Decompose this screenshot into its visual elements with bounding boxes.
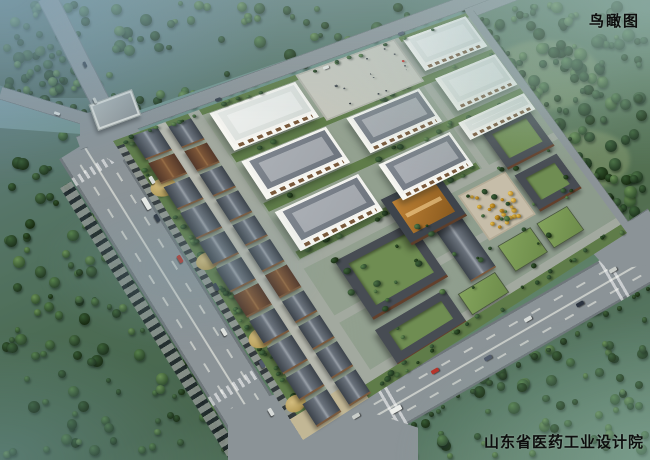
- forest-tree: [140, 14, 152, 26]
- tree: [453, 328, 461, 335]
- tree: [396, 143, 405, 150]
- pedestrian-dot: [335, 85, 338, 88]
- forest-tree: [167, 20, 175, 28]
- aerial-rendering: 鸟瞰图 山东省医药工业设计院: [0, 0, 650, 460]
- tree: [428, 348, 434, 354]
- forest-tree: [630, 175, 637, 182]
- street-tree: [546, 348, 551, 353]
- pedestrian-dot: [377, 93, 379, 95]
- forest-tree: [73, 351, 83, 361]
- forest-tree: [314, 6, 320, 12]
- pedestrian-dot: [373, 77, 375, 79]
- forest-tree: [635, 381, 643, 389]
- street-tree: [499, 372, 506, 379]
- golden-tree: [475, 196, 479, 200]
- street-tree: [429, 412, 434, 417]
- forest-tree: [517, 383, 526, 392]
- forest-tree: [112, 45, 120, 53]
- pedestrian-dot: [385, 89, 388, 91]
- forest-tree: [583, 373, 588, 378]
- forest-tree: [6, 235, 18, 247]
- forest-tree: [111, 4, 122, 15]
- forest-tree: [570, 74, 579, 83]
- forest-tree: [15, 327, 20, 332]
- forest-tree: [554, 95, 561, 102]
- tree: [547, 269, 553, 275]
- forest-tree: [536, 43, 548, 55]
- forest-tree: [474, 433, 481, 440]
- tree: [269, 138, 278, 145]
- forest-tree: [24, 376, 30, 382]
- forest-tree: [620, 389, 625, 394]
- forest-tree: [616, 374, 624, 382]
- forest-tree: [43, 60, 53, 70]
- street-tree: [544, 102, 549, 107]
- forest-tree: [636, 110, 647, 121]
- forest-tree: [154, 429, 160, 435]
- forest-tree: [59, 77, 66, 84]
- forest-tree: [76, 439, 81, 444]
- forest-tree: [578, 126, 587, 135]
- forest-tree: [310, 33, 318, 41]
- tree: [474, 313, 480, 319]
- forest-tree: [492, 452, 498, 458]
- forest-tree: [155, 418, 161, 424]
- forest-tree: [578, 103, 591, 116]
- tree: [415, 360, 420, 365]
- pedestrian-dot: [366, 58, 369, 60]
- golden-tree: [476, 204, 483, 210]
- forest-tree: [393, 3, 403, 13]
- forest-tree: [68, 386, 79, 397]
- forest-tree: [610, 394, 621, 405]
- forest-tree: [85, 256, 94, 265]
- golden-tree: [489, 221, 496, 227]
- pedestrian-dot: [405, 69, 407, 71]
- forest-tree: [72, 411, 78, 417]
- tree: [279, 377, 285, 383]
- street-tree: [646, 287, 650, 291]
- tree: [179, 224, 188, 231]
- forest-tree: [546, 375, 557, 386]
- forest-tree: [31, 294, 40, 303]
- street-tree: [575, 331, 580, 336]
- forest-tree: [303, 19, 310, 26]
- tree: [405, 368, 410, 372]
- forest-tree: [58, 370, 66, 378]
- forest-tree: [580, 88, 585, 93]
- forest-tree: [639, 185, 646, 192]
- forest-tree: [605, 140, 617, 152]
- golden-tree: [507, 190, 514, 196]
- tree: [464, 321, 470, 326]
- forest-tree: [154, 43, 164, 53]
- street-tree: [603, 311, 609, 317]
- forest-tree: [621, 54, 628, 61]
- pedestrian-dot: [349, 102, 351, 104]
- forest-tree: [104, 423, 114, 433]
- forest-tree: [39, 165, 49, 175]
- forest-tree: [421, 419, 430, 428]
- forest-tree: [13, 256, 25, 268]
- forest-tree: [627, 403, 634, 410]
- forest-tree: [564, 420, 572, 428]
- forest-tree: [59, 56, 66, 63]
- forest-tree: [172, 394, 177, 399]
- forest-tree: [592, 90, 600, 98]
- forest-tree: [187, 16, 196, 25]
- forest-tree: [495, 19, 506, 30]
- forest-tree: [128, 37, 134, 43]
- forest-tree: [609, 158, 622, 171]
- forest-tree: [87, 358, 95, 366]
- design-institute-credit: 山东省医药工业设计院: [484, 431, 644, 452]
- forest-tree: [79, 6, 90, 17]
- forest-tree: [178, 389, 184, 395]
- forest-tree: [246, 18, 251, 23]
- forest-tree: [24, 247, 30, 253]
- forest-tree: [436, 409, 442, 415]
- forest-tree: [9, 448, 17, 456]
- forest-tree: [602, 341, 608, 347]
- forest-tree: [46, 193, 54, 201]
- forest-tree: [32, 173, 40, 181]
- forest-tree: [563, 108, 569, 114]
- forest-tree: [566, 358, 575, 367]
- forest-tree: [166, 45, 171, 50]
- forest-tree: [79, 313, 90, 324]
- forest-tree: [14, 61, 21, 68]
- forest-tree: [78, 401, 89, 412]
- forest-tree: [553, 59, 558, 64]
- tree: [172, 215, 179, 221]
- forest-tree: [203, 3, 211, 11]
- forest-tree: [39, 81, 45, 87]
- forest-tree: [67, 230, 78, 241]
- forest-tree: [8, 183, 16, 191]
- forest-tree: [89, 445, 99, 455]
- forest-tree: [7, 343, 17, 353]
- pedestrian-dot: [393, 53, 396, 55]
- tree: [238, 318, 243, 323]
- forest-tree: [128, 328, 135, 335]
- forest-tree: [551, 2, 563, 14]
- forest-tree: [75, 296, 83, 304]
- forest-tree: [177, 439, 184, 446]
- forest-tree: [447, 453, 453, 459]
- forest-tree: [138, 446, 146, 454]
- street-tree: [560, 338, 567, 345]
- forest-tree: [124, 45, 135, 56]
- forest-tree: [290, 14, 296, 20]
- forest-tree: [35, 266, 47, 278]
- pedestrian-dot: [404, 65, 406, 67]
- forest-tree: [68, 262, 74, 268]
- forest-tree: [42, 399, 49, 406]
- forest-tree: [542, 395, 549, 402]
- forest-tree: [635, 402, 643, 410]
- forest-tree: [485, 409, 491, 415]
- forest-tree: [15, 334, 26, 345]
- forest-tree: [556, 401, 565, 410]
- street-tree: [486, 380, 493, 387]
- forest-tree: [61, 434, 72, 445]
- forest-tree: [254, 15, 261, 22]
- forest-tree: [254, 36, 266, 48]
- forest-tree: [557, 107, 562, 112]
- forest-tree: [71, 86, 76, 91]
- forest-tree: [595, 368, 603, 376]
- forest-tree: [107, 304, 113, 310]
- forest-tree: [608, 353, 616, 361]
- forest-tree: [523, 13, 529, 19]
- forest-tree: [508, 402, 520, 414]
- forest-tree: [31, 352, 39, 360]
- tree: [520, 285, 525, 289]
- forest-tree: [636, 62, 642, 68]
- forest-tree: [610, 175, 619, 184]
- forest-tree: [25, 219, 35, 229]
- forest-tree: [134, 349, 145, 360]
- forest-tree: [76, 269, 83, 276]
- forest-tree: [44, 302, 54, 312]
- street-tree: [587, 322, 593, 328]
- forest-tree: [629, 129, 639, 139]
- view-title: 鸟瞰图: [589, 10, 640, 31]
- forest-tree: [110, 437, 117, 444]
- forest-tree: [579, 72, 589, 82]
- forest-tree: [23, 23, 31, 31]
- street-tree: [617, 306, 622, 311]
- tree: [285, 192, 294, 199]
- tree: [534, 280, 540, 286]
- golden-tree: [516, 214, 521, 219]
- tree: [546, 275, 551, 280]
- forest-tree: [318, 33, 323, 38]
- forest-tree: [639, 345, 646, 352]
- forest-tree: [55, 85, 64, 94]
- forest-tree: [119, 304, 127, 312]
- forest-tree: [86, 266, 97, 277]
- forest-tree: [156, 373, 168, 385]
- forest-tree: [194, 1, 204, 11]
- tree: [429, 343, 435, 349]
- forest-tree: [34, 309, 42, 317]
- forest-tree: [156, 90, 165, 99]
- forest-tree: [237, 2, 247, 12]
- courtyard-garden: [525, 163, 569, 200]
- forest-tree: [10, 17, 20, 27]
- forest-tree: [67, 419, 78, 430]
- pedestrian-dot: [369, 73, 371, 75]
- golden-tree: [497, 225, 501, 229]
- forest-tree: [597, 76, 608, 87]
- forest-tree: [28, 401, 40, 413]
- forest-tree: [218, 36, 225, 43]
- pedestrian-dot: [343, 88, 346, 90]
- pedestrian-dot: [384, 48, 386, 49]
- forest-tree: [572, 399, 578, 405]
- forest-tree: [34, 65, 41, 72]
- forest-tree: [114, 26, 124, 36]
- forest-tree: [35, 193, 47, 205]
- forest-tree: [149, 443, 156, 450]
- forest-tree: [613, 407, 619, 413]
- forest-tree: [27, 69, 34, 76]
- forest-tree: [33, 12, 38, 17]
- forest-tree: [48, 294, 54, 300]
- forest-tree: [150, 31, 160, 41]
- tree: [451, 64, 457, 69]
- forest-tree: [571, 59, 582, 70]
- forest-tree: [173, 415, 180, 422]
- tree: [618, 230, 625, 236]
- forest-tree: [530, 9, 536, 15]
- forest-tree: [13, 283, 22, 292]
- forest-tree: [591, 36, 604, 49]
- forest-tree: [600, 117, 606, 123]
- tree: [582, 248, 588, 253]
- forest-tree: [40, 351, 46, 357]
- forest-tree: [91, 298, 99, 306]
- forest-tree: [254, 3, 265, 14]
- forest-tree: [69, 335, 80, 346]
- forest-tree: [81, 17, 90, 26]
- forest-tree: [640, 37, 648, 45]
- forest-tree: [585, 115, 595, 125]
- forest-tree: [116, 389, 121, 394]
- forest-tree: [53, 200, 59, 206]
- tree: [274, 371, 281, 377]
- forest-tree: [49, 53, 55, 59]
- forest-tree: [552, 351, 562, 361]
- forest-tree: [106, 72, 113, 79]
- forest-tree: [140, 328, 145, 333]
- forest-tree: [178, 1, 183, 6]
- forest-tree: [614, 39, 625, 50]
- forest-tree: [97, 343, 109, 355]
- street-tree: [531, 353, 538, 360]
- street-tree: [516, 362, 522, 368]
- forest-tree: [156, 385, 165, 394]
- forest-tree: [36, 31, 43, 38]
- forest-tree: [106, 378, 111, 383]
- forest-tree: [511, 16, 517, 22]
- forest-tree: [17, 158, 29, 170]
- forest-tree: [512, 6, 518, 12]
- forest-tree: [595, 411, 604, 420]
- forest-tree: [620, 99, 631, 110]
- forest-tree: [137, 36, 144, 43]
- forest-tree: [321, 22, 328, 29]
- forest-tree: [45, 340, 55, 350]
- forest-tree: [564, 17, 574, 27]
- forest-tree: [539, 60, 547, 68]
- forest-tree: [47, 44, 53, 50]
- forest-tree: [519, 52, 527, 60]
- forest-tree: [224, 71, 230, 77]
- forest-tree: [497, 382, 505, 390]
- forest-tree: [55, 311, 63, 319]
- forest-tree: [62, 250, 70, 258]
- forest-tree: [533, 28, 545, 40]
- tree: [256, 145, 264, 151]
- forest-tree: [49, 277, 61, 289]
- forest-tree: [43, 446, 50, 453]
- forest-tree: [642, 317, 647, 322]
- golden-tree: [500, 197, 505, 201]
